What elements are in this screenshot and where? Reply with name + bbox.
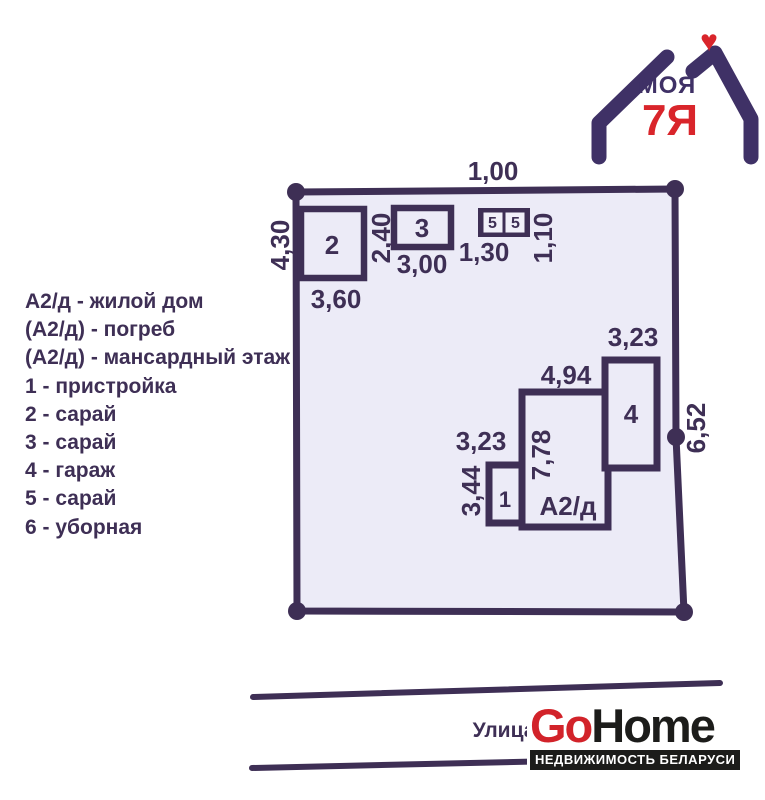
- label-shed5b: 5: [511, 215, 520, 232]
- dim-top: 1,00: [468, 156, 519, 186]
- gohome-home: Home: [591, 699, 714, 752]
- corner-dot-top-left: [287, 183, 305, 201]
- gohome-wordmark: GoHome: [530, 700, 740, 752]
- heart-icon: ♥: [700, 25, 718, 58]
- brand-logo: ♥ МОЯ 7Я: [575, 25, 765, 165]
- dim-shed3-height: 2,40: [366, 213, 396, 264]
- corner-dot-bottom-right: [675, 603, 693, 621]
- dim-left: 4,30: [265, 220, 295, 271]
- dim-shed5-height: 1,10: [528, 213, 558, 264]
- dim-garage-width: 3,23: [608, 322, 659, 352]
- corner-dot-bottom-left: [288, 602, 306, 620]
- brand-text-top: МОЯ: [638, 72, 697, 99]
- dim-annex-width: 3,23: [456, 426, 507, 456]
- corner-dot-top-right: [666, 180, 684, 198]
- dim-shed2-width: 3,60: [311, 284, 362, 314]
- gohome-logo: GoHome НЕДВИЖИМОСТЬ БЕЛАРУСИ: [527, 700, 743, 772]
- dim-shed3-width: 3,00: [397, 249, 448, 279]
- brand-text-main: 7Я: [642, 96, 698, 145]
- street-line-top: [253, 683, 720, 697]
- label-shed5a: 5: [488, 215, 497, 232]
- dim-house-height: 7,78: [526, 430, 556, 481]
- label-garage: 4: [624, 399, 639, 429]
- gohome-go: Go: [530, 699, 591, 752]
- label-house: А2/д: [540, 491, 597, 521]
- dim-house-width: 4,94: [541, 360, 592, 390]
- dim-annex-height: 3,44: [456, 465, 486, 516]
- gohome-tagline: НЕДВИЖИМОСТЬ БЕЛАРУСИ: [530, 750, 740, 770]
- label-annex: 1: [499, 487, 511, 512]
- label-shed3: 3: [415, 213, 429, 243]
- label-shed2: 2: [325, 230, 339, 260]
- dim-shed5-width: 1,30: [459, 237, 510, 267]
- dim-right: 6,52: [681, 403, 711, 454]
